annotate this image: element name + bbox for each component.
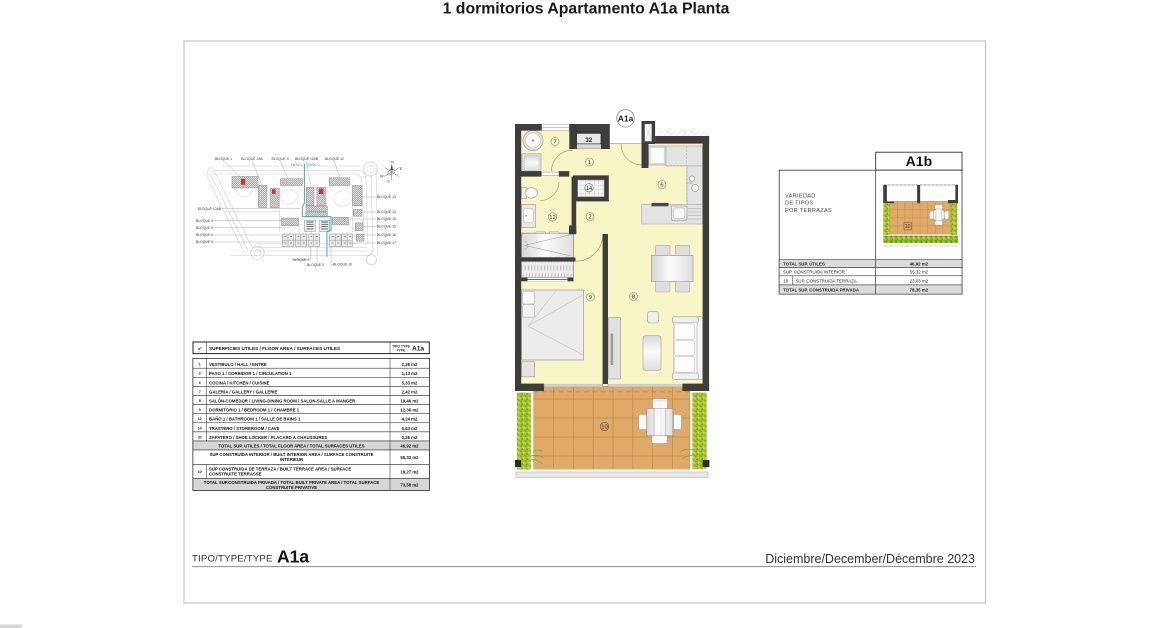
svg-text:BAÑO 1 / BATHROOM 1 / SALLE DE: BAÑO 1 / BATHROOM 1 / SALLE DE BAINS 1 [209, 417, 301, 422]
svg-text:9: 9 [589, 295, 592, 301]
svg-text:4,24 m2: 4,24 m2 [402, 417, 418, 422]
svg-text:BLOQUE 13: BLOQUE 13 [377, 195, 396, 199]
svg-text:S: S [387, 180, 390, 184]
svg-text:14: 14 [586, 186, 593, 192]
svg-text:2: 2 [588, 215, 591, 221]
svg-text:TYPE: TYPE [397, 349, 407, 353]
svg-text:BLOQUE 7: BLOQUE 7 [293, 258, 310, 262]
svg-text:W: W [380, 174, 384, 178]
svg-text:SALÓN-COMEDOR / LIVING-DINING: SALÓN-COMEDOR / LIVING-DINING ROOM / SAL… [209, 399, 356, 404]
svg-text:FASE 2: FASE 2 [308, 163, 320, 167]
svg-text:10: 10 [601, 425, 607, 431]
svg-text:TOTAL SUP. UTILES / TOTAL FLO: TOTAL SUP. UTILES / TOTAL FLOOR AREA / T… [218, 444, 364, 449]
svg-text:1: 1 [199, 363, 201, 367]
svg-text:2,28 m2: 2,28 m2 [402, 362, 418, 367]
svg-text:BLOQUE 4: BLOQUE 4 [196, 219, 213, 223]
svg-text:6: 6 [660, 183, 663, 189]
svg-text:A1b: A1b [906, 153, 932, 169]
svg-text:BLOQUE 6: BLOQUE 6 [196, 233, 213, 237]
svg-text:2,42 m2: 2,42 m2 [402, 389, 418, 394]
svg-text:INTÉRIEUR: INTÉRIEUR [280, 457, 304, 462]
svg-text:10: 10 [905, 224, 911, 230]
svg-text:14: 14 [198, 426, 202, 430]
svg-text:0,25 m2: 0,25 m2 [402, 435, 418, 440]
svg-text:BLOQUE 9: BLOQUE 9 [196, 226, 213, 230]
svg-text:A1a: A1a [277, 547, 309, 567]
svg-text:BLOQUE 15: BLOQUE 15 [377, 217, 396, 221]
svg-text:0,63 m2: 0,63 m2 [402, 426, 418, 431]
svg-text:7: 7 [553, 140, 556, 146]
svg-text:46,92 m2: 46,92 m2 [400, 444, 419, 449]
svg-text:E: E [400, 167, 403, 171]
svg-text:DE TIPOS: DE TIPOS [785, 201, 813, 207]
svg-text:8: 8 [199, 399, 201, 403]
svg-text:TIPO/TYPE/TYPE: TIPO/TYPE/TYPE [192, 554, 273, 565]
svg-text:10: 10 [783, 278, 788, 283]
svg-text:BLOQUE 5: BLOQUE 5 [196, 240, 213, 244]
svg-text:5,33 m2: 5,33 m2 [402, 380, 418, 385]
svg-text:DORMITORIO 1 / BEDROOM 1 / CHA: DORMITORIO 1 / BEDROOM 1 / CHAMBRE 1 [209, 408, 300, 413]
svg-text:10: 10 [198, 470, 202, 474]
svg-text:CONSTRUITE TERRASSE: CONSTRUITE TERRASSE [209, 472, 262, 477]
svg-text:1: 1 [588, 160, 591, 166]
svg-text:VESTIBULO / HALL / ENTRÉ: VESTIBULO / HALL / ENTRÉ [209, 362, 267, 367]
svg-text:BLOQUE 11AB: BLOQUE 11AB [295, 157, 319, 161]
svg-text:BLOQUE 12: BLOQUE 12 [325, 157, 344, 161]
svg-text:19,46 m2: 19,46 m2 [400, 399, 419, 404]
svg-text:BLOQUE 10AB: BLOQUE 10AB [198, 207, 222, 211]
svg-text:SUPERFICIES UTILES / FLOOR ARE: SUPERFICIES UTILES / FLOOR AREA / SURFAC… [209, 346, 340, 351]
svg-text:A1a: A1a [412, 346, 424, 353]
svg-text:BLOQUE 1: BLOQUE 1 [215, 157, 232, 161]
svg-text:PASO 1 / CORRIDOR 1 / CIRCULAT: PASO 1 / CORRIDOR 1 / CIRCULATION 1 [209, 371, 292, 376]
svg-text:A1a: A1a [618, 113, 634, 123]
svg-text:SUP. CONSTRUIDA INTERIOR: SUP. CONSTRUIDA INTERIOR [783, 269, 845, 274]
svg-text:BLOQUE 14: BLOQUE 14 [377, 210, 396, 214]
svg-text:55,32 m2: 55,32 m2 [910, 269, 929, 274]
svg-text:BLOQUE 9: BLOQUE 9 [307, 263, 324, 267]
svg-text:SUP. CONSTRUIDA TERRAZA: SUP. CONSTRUIDA TERRAZA [796, 278, 857, 283]
svg-text:23,03 m2: 23,03 m2 [910, 278, 929, 283]
svg-text:12: 12 [549, 215, 555, 221]
svg-text:46,92 m2: 46,92 m2 [910, 261, 929, 266]
svg-text:12: 12 [198, 417, 202, 421]
svg-text:N: N [391, 161, 394, 165]
svg-text:32: 32 [585, 137, 592, 144]
svg-text:7: 7 [199, 390, 201, 394]
svg-text:VARIEDAD: VARIEDAD [785, 194, 816, 200]
svg-text:1 dormitorios Apartamento A1a: 1 dormitorios Apartamento A1a Planta [443, 1, 730, 18]
svg-text:9: 9 [199, 408, 201, 412]
svg-text:CONSTRUITE PRIVATIVE: CONSTRUITE PRIVATIVE [266, 485, 317, 490]
svg-text:8: 8 [632, 295, 635, 301]
svg-text:55,32 m2: 55,32 m2 [400, 455, 419, 460]
svg-text:GALERÍA / GALLERY / GALLERIE: GALERÍA / GALLERY / GALLERIE [209, 389, 277, 394]
svg-text:BLOQUE 2AB: BLOQUE 2AB [241, 157, 263, 161]
svg-text:Diciembre/December/Décembre 20: Diciembre/December/Décembre 2023 [765, 552, 975, 566]
svg-text:12,36 m2: 12,36 m2 [400, 408, 419, 413]
svg-text:ZAPATERO / SHOE LOCKER / PLACA: ZAPATERO / SHOE LOCKER / PLACARD À CHAUS… [209, 435, 327, 440]
svg-text:FASE 1: FASE 1 [291, 163, 303, 167]
svg-text:32: 32 [198, 435, 202, 439]
svg-text:COCINA / KITCHEN / CUISINE: COCINA / KITCHEN / CUISINE [209, 380, 270, 385]
svg-text:POR TERRAZAS: POR TERRAZAS [785, 208, 832, 214]
svg-text:BLOQUE 16: BLOQUE 16 [333, 262, 352, 266]
svg-text:2: 2 [199, 372, 201, 376]
svg-text:BLOQUE 18: BLOQUE 18 [377, 233, 396, 237]
svg-text:BLOQUE 3: BLOQUE 3 [272, 157, 289, 161]
svg-text:18,27 m2: 18,27 m2 [400, 469, 419, 474]
svg-text:73,58 m2: 73,58 m2 [400, 483, 419, 488]
svg-text:6: 6 [199, 381, 201, 385]
svg-text:BLOQUE 17: BLOQUE 17 [377, 241, 396, 245]
svg-text:TOTAL SUP. CONSTRUIDA PRIVADA: TOTAL SUP. CONSTRUIDA PRIVADA [783, 287, 860, 292]
svg-text:TRASTERO / STOREROOM / CAVE: TRASTERO / STOREROOM / CAVE [209, 426, 280, 431]
svg-text:78,35 m2: 78,35 m2 [910, 287, 929, 292]
svg-text:1,13 m2: 1,13 m2 [402, 371, 418, 376]
svg-text:TOTAL SUP. ÚTILES: TOTAL SUP. ÚTILES [783, 261, 825, 266]
svg-text:BLOQUE 19: BLOQUE 19 [377, 225, 396, 229]
